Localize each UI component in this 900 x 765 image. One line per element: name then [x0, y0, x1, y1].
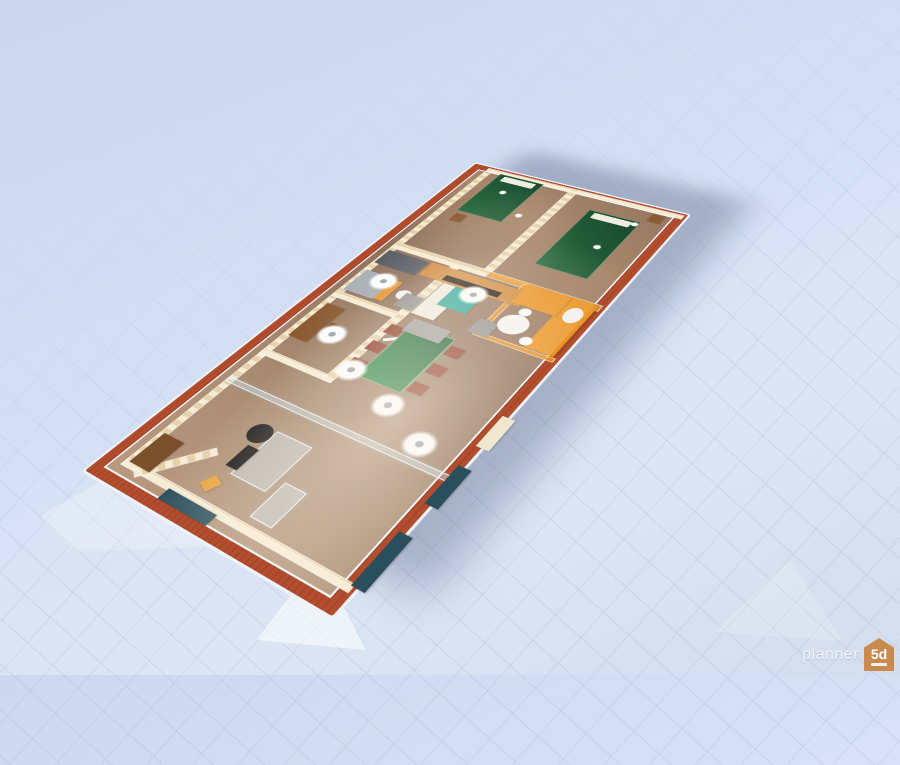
ceiling-light-dining-1	[326, 354, 375, 385]
office-side-table	[250, 483, 307, 529]
bed-bedroom-a	[457, 174, 544, 222]
watermark-brand-text: planner	[802, 646, 859, 664]
wallpaper-lining-left	[122, 458, 355, 591]
logo-bar	[871, 663, 887, 666]
bed-bedroom-b	[534, 210, 641, 280]
planner5d-house-logo: 5d	[864, 638, 894, 671]
pendant-bedroom-a-2	[513, 213, 524, 219]
floorplan-tilt-plane	[85, 164, 688, 617]
scene-items-layer	[103, 169, 478, 467]
ground-light-reflection	[700, 560, 850, 650]
planner5d-render-page: { "watermark": { "brand": "planner", "lo…	[0, 0, 900, 675]
nightstand-bedroom-a	[449, 213, 468, 223]
nightstand-bedroom-b	[646, 214, 665, 224]
orange-wedge-decor	[200, 475, 222, 492]
gray-armchair-2	[467, 318, 500, 338]
logo-5d-text: 5d	[871, 647, 887, 661]
watermark: planner 5d	[802, 638, 894, 671]
